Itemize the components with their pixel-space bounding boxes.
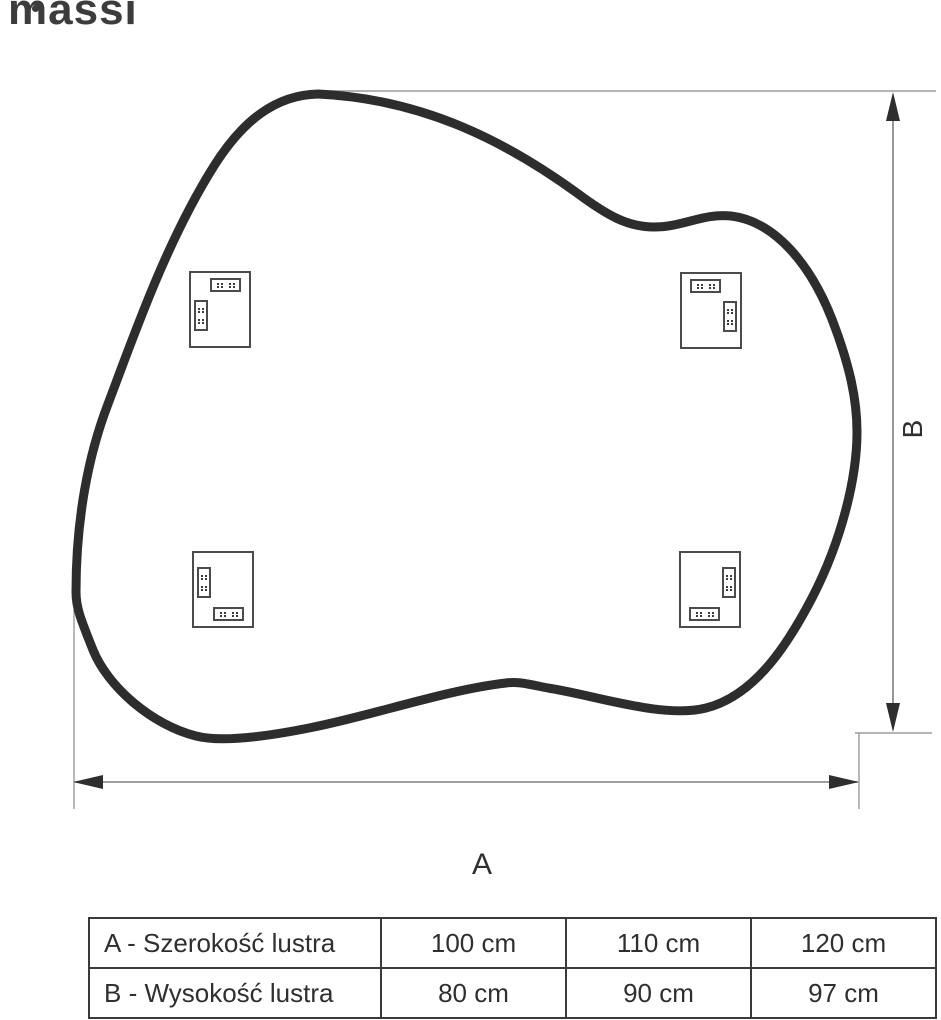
screw-marks-icon [201,586,203,588]
screw-marks-icon [198,308,200,310]
screw-marks-icon [198,319,200,321]
table-cell-height-label: B - Wysokość lustra [89,968,381,1018]
table-cell-width-value: 110 cm [566,918,751,968]
screw-marks-icon [697,284,699,286]
bracket-slot-horizontal [690,279,721,293]
arrow-left-icon [73,775,103,789]
page-canvas: massi [0,0,941,1020]
bracket-slot-horizontal [689,607,720,621]
table-row-width: A - Szerokość lustra 100 cm 110 cm 120 c… [89,918,936,968]
screw-marks-icon [726,575,728,577]
table-cell-width-value: 120 cm [751,918,936,968]
screw-marks-icon [201,575,203,577]
arrow-down-icon [886,703,900,732]
table-cell-height-value: 80 cm [381,968,566,1018]
bracket-slot-vertical [197,567,211,598]
table-cell-width-value: 100 cm [381,918,566,968]
screw-marks-icon [232,612,234,614]
bracket-slot-vertical [194,300,208,331]
mounting-bracket-top-left [189,271,251,348]
size-spec-table: A - Szerokość lustra 100 cm 110 cm 120 c… [88,917,937,1019]
bracket-slot-horizontal [213,607,244,621]
arrow-up-icon [886,92,900,121]
screw-marks-icon [217,283,219,285]
width-dimension-label: A [462,848,502,882]
table-cell-height-value: 97 cm [751,968,936,1018]
mounting-bracket-bottom-right [679,551,741,628]
bracket-slot-vertical [722,567,736,598]
bracket-slot-vertical [723,301,737,332]
screw-marks-icon [220,612,222,614]
table-cell-height-value: 90 cm [566,968,751,1018]
mounting-bracket-top-right [680,272,742,349]
screw-marks-icon [708,612,710,614]
height-dimension-label: B [896,412,930,446]
arrow-right-icon [829,775,859,789]
table-cell-width-label: A - Szerokość lustra [89,918,381,968]
screw-marks-icon [709,284,711,286]
screw-marks-icon [727,320,729,322]
screw-marks-icon [229,283,231,285]
mounting-bracket-bottom-left [192,551,254,628]
mirror-outline [76,94,857,739]
screw-marks-icon [726,586,728,588]
screw-marks-icon [727,309,729,311]
bracket-slot-horizontal [210,278,241,292]
table-row-height: B - Wysokość lustra 80 cm 90 cm 97 cm [89,968,936,1018]
screw-marks-icon [696,612,698,614]
